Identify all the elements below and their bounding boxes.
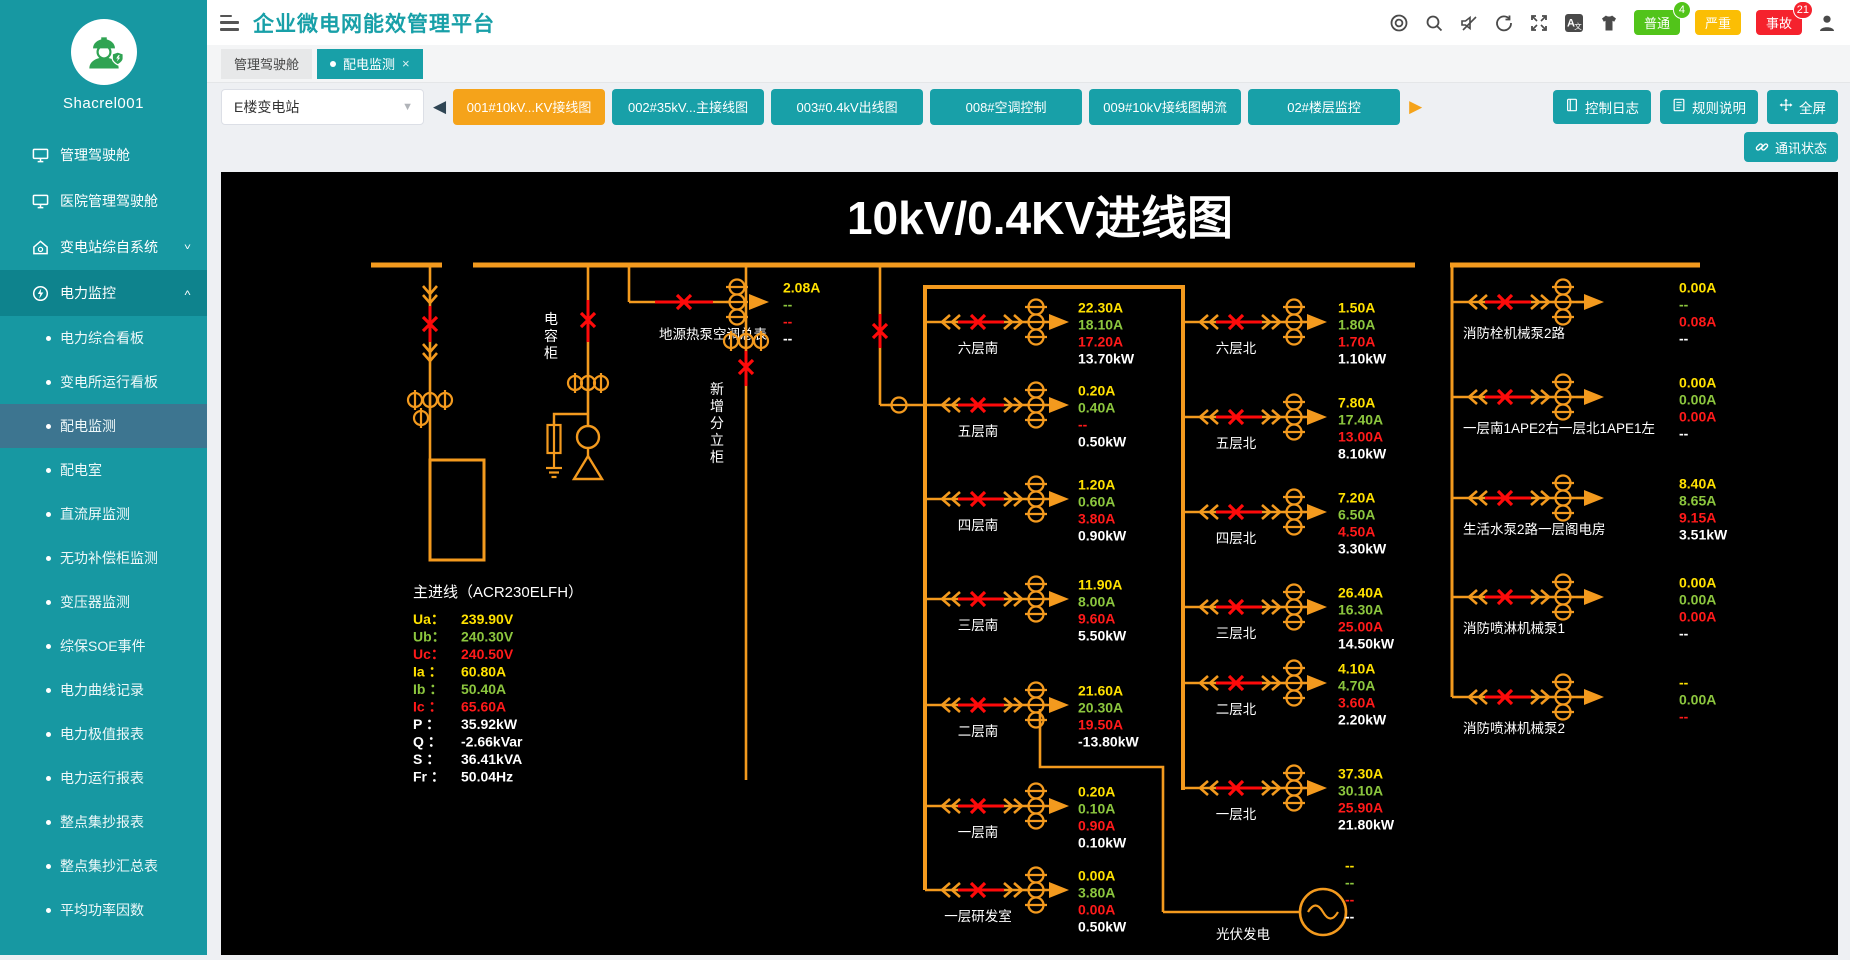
svg-text:Ib ：: Ib ： (413, 681, 443, 697)
worker-avatar-icon (82, 30, 126, 74)
sidebar-subitem[interactable]: 变压器监测 (0, 580, 207, 624)
bullet-icon (46, 776, 51, 781)
refresh-icon[interactable] (1494, 13, 1514, 33)
svg-text:六层北: 六层北 (1216, 341, 1257, 356)
svg-text:5.50kW: 5.50kW (1078, 628, 1127, 644)
svg-text:光伏发电: 光伏发电 (1216, 927, 1270, 942)
button-label: 全屏 (1799, 97, 1826, 117)
fullscreen-button[interactable]: 全屏 (1767, 90, 1838, 124)
svg-text:2.20kW: 2.20kW (1338, 712, 1387, 728)
button-icon (1672, 98, 1686, 115)
svg-text:--: -- (1679, 331, 1689, 347)
sidebar-subitem-label: 平均功率因数 (60, 900, 144, 920)
svg-text:0.40A: 0.40A (1078, 400, 1115, 416)
svg-text:0.90kW: 0.90kW (1078, 528, 1127, 544)
svg-text:3.80A: 3.80A (1078, 885, 1115, 901)
svg-text:新: 新 (710, 381, 724, 397)
sidebar-item-1[interactable]: 医院管理驾驶舱 (0, 178, 207, 224)
svg-text:一层南1APE2右一层北1APE1左: 一层南1APE2右一层北1APE1左 (1463, 421, 1655, 436)
svg-text:--: -- (1679, 426, 1689, 442)
station-select-value: E楼变电站 (234, 97, 299, 117)
svg-text:8.65A: 8.65A (1679, 493, 1716, 509)
alarm-badge-label: 严重 (1705, 13, 1731, 32)
bullet-icon (46, 424, 51, 429)
svg-text:239.90V: 239.90V (461, 611, 514, 627)
sidebar-subitem-label: 变电所运行看板 (60, 372, 158, 392)
diagram-toolbar: E楼变电站 ▼ ◀ 001#10kV...KV接线图002#35kV...主接线… (221, 88, 1838, 125)
svg-text:10kV/0.4KV进线图: 10kV/0.4KV进线图 (847, 192, 1233, 244)
svg-text:Ua：: Ua： (413, 611, 445, 627)
user-icon[interactable] (1817, 13, 1837, 33)
sidebar-subitem[interactable]: 平均功率因数 (0, 888, 207, 932)
sidebar-subitem[interactable]: 电力运行报表 (0, 756, 207, 800)
station-tab[interactable]: 003#0.4kV出线图 (771, 89, 923, 125)
svg-text:二层南: 二层南 (958, 724, 999, 739)
top-header: 企业微电网能效管理平台 A文普通4严重事故21 (207, 0, 1850, 45)
svg-text:4.50A: 4.50A (1338, 524, 1375, 540)
sidebar-subitem-label: 变压器监测 (60, 592, 130, 612)
svg-text:四层北: 四层北 (1216, 531, 1257, 546)
comm-status-button[interactable]: 通讯状态 (1744, 132, 1838, 162)
sidebar-item-3[interactable]: 电力监控˄ (0, 270, 207, 316)
svg-text:一层研发室: 一层研发室 (944, 908, 1012, 924)
station-select[interactable]: E楼变电站 ▼ (221, 89, 424, 125)
sidebar-subitem-label: 整点集抄汇总表 (60, 856, 158, 876)
bullet-icon (46, 864, 51, 869)
sidebar-item-label: 电力监控 (60, 283, 116, 303)
svg-text:文: 文 (1574, 21, 1582, 31)
sidebar-subitem[interactable]: 直流屏监测 (0, 492, 207, 536)
button-icon (1779, 98, 1793, 115)
svg-text:4.70A: 4.70A (1338, 678, 1375, 694)
home-icon (32, 239, 49, 256)
sidebar-subitem[interactable]: 整点集抄汇总表 (0, 844, 207, 888)
svg-text:0.00A: 0.00A (1679, 575, 1716, 591)
svg-text:--: -- (1679, 297, 1689, 313)
svg-text:一层南: 一层南 (958, 825, 999, 840)
svg-text:-2.66kVar: -2.66kVar (461, 734, 523, 750)
page-tabs: 管理驾驶舱配电监测× (207, 45, 1850, 83)
svg-text:0.00A: 0.00A (1679, 692, 1716, 708)
svg-text:21.80kW: 21.80kW (1338, 817, 1395, 833)
bullet-icon (46, 644, 51, 649)
svg-text:Ic ：: Ic ： (413, 699, 443, 715)
svg-text:0.20A: 0.20A (1078, 383, 1115, 399)
alarm-badge-label: 事故 (1766, 13, 1792, 32)
svg-text:S ：: S ： (413, 751, 440, 767)
svg-text:17.20A: 17.20A (1078, 334, 1123, 350)
sidebar-subitem[interactable]: 电力曲线记录 (0, 668, 207, 712)
svg-text:50.40A: 50.40A (461, 681, 506, 697)
svg-text:4.10A: 4.10A (1338, 661, 1375, 677)
sidebar-subitem-label: 电力运行报表 (60, 768, 144, 788)
svg-text:电: 电 (544, 311, 558, 327)
mute-icon[interactable] (1459, 13, 1479, 33)
alarm-badge[interactable]: 严重 (1695, 10, 1741, 35)
svg-text:21.60A: 21.60A (1078, 683, 1123, 699)
svg-text:0.00A: 0.00A (1679, 280, 1716, 296)
svg-text:35.92kW: 35.92kW (461, 716, 518, 732)
svg-text:3.80A: 3.80A (1078, 511, 1115, 527)
page-tab[interactable]: 管理驾驶舱 (221, 49, 312, 79)
sidebar-subitem[interactable]: 配电监测 (0, 404, 207, 448)
svg-text:0.00A: 0.00A (1679, 409, 1716, 425)
svg-text:Q ：: Q ： (413, 734, 442, 750)
fullscreen-icon[interactable] (1529, 13, 1549, 33)
svg-text:分: 分 (710, 415, 724, 431)
svg-text:二层北: 二层北 (1216, 702, 1257, 717)
button-icon (1565, 98, 1579, 115)
svg-text:1.50A: 1.50A (1338, 300, 1375, 316)
svg-text:容: 容 (544, 328, 558, 344)
svg-text:25.90A: 25.90A (1338, 800, 1383, 816)
sidebar-subitem-label: 配电室 (60, 460, 102, 480)
svg-text:--: -- (1345, 875, 1355, 891)
alarm-badge[interactable]: 普通4 (1634, 10, 1680, 35)
sidebar-subitem[interactable]: 电力综合看板 (0, 316, 207, 360)
diagram-svg: 10kV/0.4KV进线图主进线（ACR230ELFH）Ua：239.90VUb… (221, 172, 1838, 955)
header-actions: A文普通4严重事故21 (1389, 10, 1837, 35)
svg-text:17.40A: 17.40A (1338, 412, 1383, 428)
active-dot-icon (330, 61, 336, 67)
svg-text:三层北: 三层北 (1216, 626, 1257, 641)
svg-text:3.51kW: 3.51kW (1679, 527, 1728, 543)
svg-text:8.10kW: 8.10kW (1338, 446, 1387, 462)
sidebar-item-2[interactable]: 变电站综自系统˅ (0, 224, 207, 270)
svg-text:6.50A: 6.50A (1338, 507, 1375, 523)
tabs-scroll-left-icon[interactable]: ◀ (433, 98, 446, 115)
bullet-icon (46, 820, 51, 825)
svg-text:0.20A: 0.20A (1078, 784, 1115, 800)
svg-text:--: -- (783, 314, 793, 330)
sidebar-subitem-label: 电力极值报表 (60, 724, 144, 744)
search-icon[interactable] (1424, 13, 1444, 33)
svg-text:240.30V: 240.30V (461, 629, 514, 645)
page-tab[interactable]: 配电监测× (317, 49, 423, 79)
toolbar-buttons: 控制日志规则说明全屏 (1544, 90, 1838, 124)
svg-text:P ：: P ： (413, 716, 440, 732)
link-icon (1755, 140, 1769, 154)
svg-text:18.10A: 18.10A (1078, 317, 1123, 333)
bullet-icon (46, 556, 51, 561)
close-icon[interactable]: × (402, 56, 410, 71)
sidebar-subitem-label: 整点集抄报表 (60, 812, 144, 832)
svg-text:26.40A: 26.40A (1338, 585, 1383, 601)
svg-text:0.50kW: 0.50kW (1078, 434, 1127, 450)
svg-text:生活水泵2路一层阁电房: 生活水泵2路一层阁电房 (1463, 522, 1606, 537)
svg-text:地源热泵空调总表: 地源热泵空调总表 (659, 327, 767, 342)
svg-text:--: -- (1345, 909, 1355, 925)
single-line-diagram: 10kV/0.4KV进线图主进线（ACR230ELFH）Ua：239.90VUb… (221, 172, 1838, 955)
sidebar-item-label: 变电站综自系统 (60, 237, 158, 257)
svg-text:1.80A: 1.80A (1338, 317, 1375, 333)
svg-text:0.08A: 0.08A (1679, 314, 1716, 330)
svg-text:65.60A: 65.60A (461, 699, 506, 715)
svg-text:Uc：: Uc： (413, 646, 445, 662)
svg-text:Ia ：: Ia ： (413, 664, 443, 680)
svg-text:0.10A: 0.10A (1078, 801, 1115, 817)
bullet-icon (46, 600, 51, 605)
svg-text:7.20A: 7.20A (1338, 490, 1375, 506)
station-tab[interactable]: 008#空调控制 (930, 89, 1082, 125)
button-label: 规则说明 (1692, 97, 1746, 117)
page-tab-label: 管理驾驶舱 (234, 54, 299, 73)
station-tab[interactable]: 02#楼层监控 (1248, 89, 1400, 125)
svg-text:36.41kVA: 36.41kVA (461, 751, 522, 767)
page-tab-label: 配电监测 (343, 54, 395, 73)
sidebar-subitem[interactable]: 整点集抄报表 (0, 800, 207, 844)
monitor-icon (32, 147, 49, 164)
svg-text:0.00A: 0.00A (1679, 609, 1716, 625)
sidebar-subitem[interactable]: 综保SOE事件 (0, 624, 207, 668)
svg-text:消防喷淋机械泵1: 消防喷淋机械泵1 (1463, 621, 1565, 636)
svg-text:五层北: 五层北 (1216, 436, 1257, 451)
sidebar-subitem-label: 电力综合看板 (60, 328, 144, 348)
app-title: 企业微电网能效管理平台 (253, 8, 495, 38)
chevron-down-icon: ˅ (184, 241, 191, 252)
svg-text:--: -- (1679, 675, 1689, 691)
svg-text:--: -- (1345, 892, 1355, 908)
svg-text:--: -- (783, 331, 793, 347)
svg-text:--: -- (1078, 417, 1088, 433)
svg-text:-13.80kW: -13.80kW (1078, 734, 1139, 750)
svg-text:五层南: 五层南 (958, 424, 999, 439)
svg-text:0.00A: 0.00A (1679, 375, 1716, 391)
alarm-count: 4 (1673, 1, 1691, 19)
svg-text:9.15A: 9.15A (1679, 510, 1716, 526)
svg-text:--: -- (783, 297, 793, 313)
station-tab[interactable]: 001#10kV...KV接线图 (453, 89, 605, 125)
menu-toggle-icon[interactable] (220, 15, 240, 31)
rule-description-button[interactable]: 规则说明 (1660, 90, 1758, 124)
translate-icon[interactable]: A文 (1564, 13, 1584, 33)
station-tab[interactable]: 002#35kV...主接线图 (612, 89, 764, 125)
svg-text:11.90A: 11.90A (1078, 577, 1122, 593)
svg-text:14.50kW: 14.50kW (1338, 636, 1395, 652)
svg-text:20.30A: 20.30A (1078, 700, 1123, 716)
station-tab[interactable]: 009#10kV接线图朝流 (1089, 89, 1241, 125)
station-tabs: 001#10kV...KV接线图002#35kV...主接线图003#0.4kV… (446, 89, 1400, 125)
sidebar-item-label: 管理驾驶舱 (60, 145, 130, 165)
svg-text:8.40A: 8.40A (1679, 476, 1716, 492)
svg-text:2.08A: 2.08A (783, 280, 820, 296)
chevron-up-icon: ˄ (184, 287, 191, 298)
sidebar-subitem-label: 直流屏监测 (60, 504, 130, 524)
svg-text:一层北: 一层北 (1216, 807, 1257, 822)
svg-text:9.60A: 9.60A (1078, 611, 1115, 627)
svg-text:Ub：: Ub： (413, 629, 446, 645)
main-area: 企业微电网能效管理平台 A文普通4严重事故21 管理驾驶舱配电监测× E楼变电站… (207, 0, 1850, 955)
alarm-badge[interactable]: 事故21 (1756, 10, 1802, 35)
control-log-button[interactable]: 控制日志 (1553, 90, 1651, 124)
svg-text:主进线（ACR230ELFH）: 主进线（ACR230ELFH） (413, 584, 583, 601)
svg-text:0.10kW: 0.10kW (1078, 835, 1127, 851)
svg-text:16.30A: 16.30A (1338, 602, 1383, 618)
bullet-icon (46, 380, 51, 385)
svg-text:--: -- (1679, 709, 1689, 725)
svg-text:0.00A: 0.00A (1679, 592, 1716, 608)
svg-text:7.80A: 7.80A (1338, 395, 1375, 411)
sidebar-subitem-label: 无功补偿柜监测 (60, 548, 158, 568)
sidebar: Shacrel001 管理驾驶舱医院管理驾驶舱变电站综自系统˅电力监控˄电力综合… (0, 0, 207, 955)
username: Shacrel001 (0, 95, 207, 112)
sidebar-item-0[interactable]: 管理驾驶舱 (0, 132, 207, 178)
target-icon[interactable] (1389, 13, 1409, 33)
svg-text:1.10kW: 1.10kW (1338, 351, 1387, 367)
bullet-icon (46, 336, 51, 341)
svg-text:1.20A: 1.20A (1078, 477, 1115, 493)
svg-text:3.30kW: 3.30kW (1338, 541, 1387, 557)
svg-text:三层南: 三层南 (958, 618, 999, 633)
svg-text:六层南: 六层南 (958, 341, 999, 356)
sidebar-subitem[interactable]: 无功补偿柜监测 (0, 536, 207, 580)
svg-text:3.60A: 3.60A (1338, 695, 1375, 711)
svg-text:0.60A: 0.60A (1078, 494, 1115, 510)
sidebar-menu: 管理驾驶舱医院管理驾驶舱变电站综自系统˅电力监控˄电力综合看板变电所运行看板配电… (0, 132, 207, 932)
svg-text:240.50V: 240.50V (461, 646, 514, 662)
svg-text:--: -- (1679, 626, 1689, 642)
svg-text:22.30A: 22.30A (1078, 300, 1123, 316)
sidebar-subitem[interactable]: 配电室 (0, 448, 207, 492)
svg-text:0.90A: 0.90A (1078, 818, 1115, 834)
sidebar-item-label: 医院管理驾驶舱 (60, 191, 158, 211)
sidebar-subitem-label: 综保SOE事件 (60, 636, 146, 656)
bullet-icon (46, 732, 51, 737)
svg-text:60.80A: 60.80A (461, 664, 506, 680)
chevron-down-icon: ▼ (402, 101, 413, 113)
comm-status-label: 通讯状态 (1775, 138, 1827, 157)
alarm-count: 21 (1793, 1, 1813, 19)
svg-text:50.04Hz: 50.04Hz (461, 769, 513, 785)
bullet-icon (46, 468, 51, 473)
svg-text:0.50kW: 0.50kW (1078, 919, 1127, 935)
sidebar-subitem-label: 电力曲线记录 (60, 680, 144, 700)
svg-text:25.00A: 25.00A (1338, 619, 1383, 635)
svg-text:8.00A: 8.00A (1078, 594, 1115, 610)
svg-text:消防喷淋机械泵2: 消防喷淋机械泵2 (1463, 721, 1565, 736)
power-icon (32, 285, 49, 302)
svg-text:0.00A: 0.00A (1078, 902, 1115, 918)
bullet-icon (46, 908, 51, 913)
monitor-icon (32, 193, 49, 210)
svg-text:37.30A: 37.30A (1338, 766, 1383, 782)
svg-text:Fr ：: Fr ： (413, 769, 445, 785)
svg-text:13.00A: 13.00A (1338, 429, 1383, 445)
svg-text:柜: 柜 (710, 449, 724, 465)
svg-text:增: 增 (710, 398, 724, 414)
svg-text:--: -- (1345, 858, 1355, 874)
sidebar-subitem[interactable]: 变电所运行看板 (0, 360, 207, 404)
theme-icon[interactable] (1599, 13, 1619, 33)
bullet-icon (46, 688, 51, 693)
svg-text:19.50A: 19.50A (1078, 717, 1123, 733)
alarm-badge-label: 普通 (1644, 13, 1670, 32)
button-label: 控制日志 (1585, 97, 1639, 117)
sidebar-subitem-label: 配电监测 (60, 416, 116, 436)
bullet-icon (46, 512, 51, 517)
avatar[interactable] (71, 19, 137, 85)
svg-text:柜: 柜 (544, 345, 558, 361)
svg-text:四层南: 四层南 (958, 518, 999, 533)
svg-text:1.70A: 1.70A (1338, 334, 1375, 350)
tabs-scroll-right-icon[interactable]: ▶ (1409, 98, 1422, 115)
svg-text:立: 立 (710, 432, 724, 448)
svg-text:13.70kW: 13.70kW (1078, 351, 1135, 367)
svg-text:0.00A: 0.00A (1078, 868, 1115, 884)
svg-text:消防栓机械泵2路: 消防栓机械泵2路 (1463, 326, 1566, 341)
sidebar-subitem[interactable]: 电力极值报表 (0, 712, 207, 756)
svg-text:30.10A: 30.10A (1338, 783, 1383, 799)
svg-text:0.00A: 0.00A (1679, 392, 1716, 408)
